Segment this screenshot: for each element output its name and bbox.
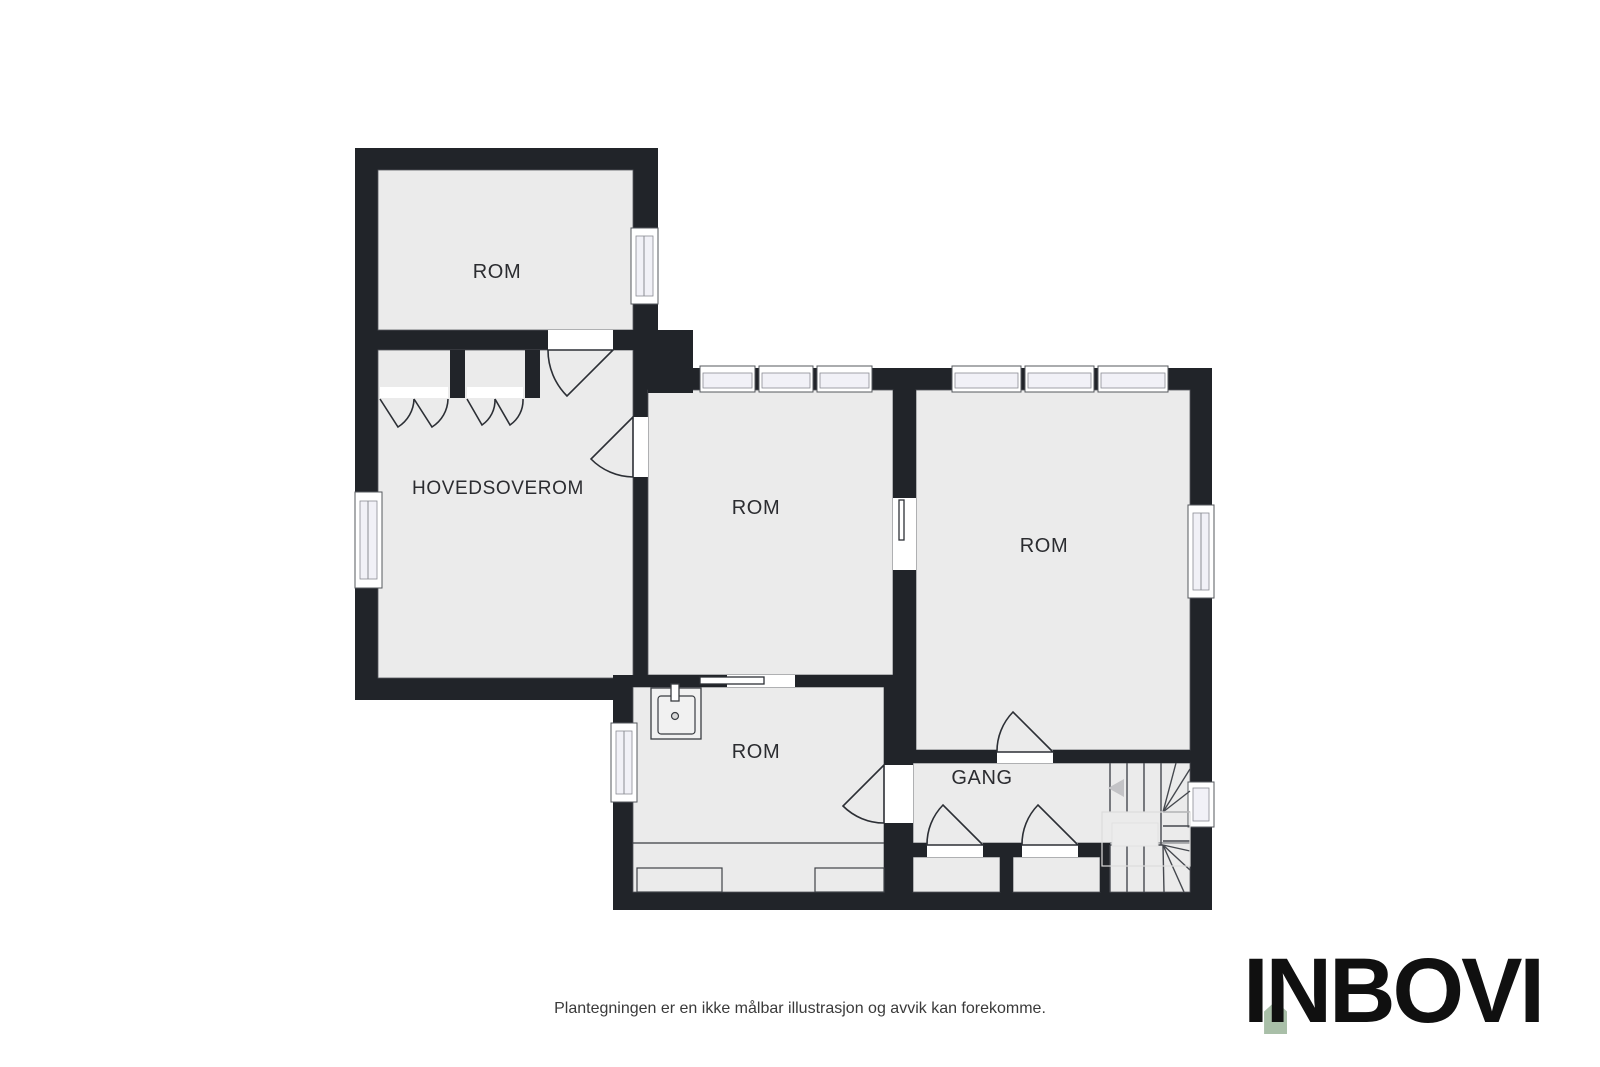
- window: [355, 492, 382, 588]
- logo: INBOVI: [1243, 945, 1542, 1037]
- room-middle: [648, 390, 893, 675]
- window: [1188, 505, 1214, 598]
- logo-text: INBOVI: [1243, 940, 1542, 1042]
- sink-icon: [651, 684, 701, 739]
- room-label-master-bedroom: HOVEDSOVEROM: [412, 478, 584, 499]
- room-label-bottom: ROM: [732, 741, 780, 763]
- window-band: [700, 366, 872, 392]
- window: [631, 228, 658, 304]
- room-label-middle: ROM: [732, 497, 780, 519]
- closet-left: [913, 857, 1000, 892]
- stair-area-lower: [1110, 843, 1190, 892]
- room-label-right: ROM: [1020, 535, 1068, 557]
- floor-plan: ROM HOVEDSOVEROM ROM ROM ROM GANG: [0, 0, 1600, 1067]
- window: [611, 723, 637, 802]
- window: [1188, 782, 1214, 827]
- room-top-left: [378, 170, 633, 330]
- room-label-hallway: GANG: [951, 767, 1012, 789]
- closet-right: [1013, 857, 1100, 892]
- room-right: [916, 390, 1190, 750]
- window-band: [952, 366, 1168, 392]
- room-label-top-left: ROM: [473, 261, 521, 283]
- floor-plan-page: ROM HOVEDSOVEROM ROM ROM ROM GANG Plante…: [0, 0, 1600, 1067]
